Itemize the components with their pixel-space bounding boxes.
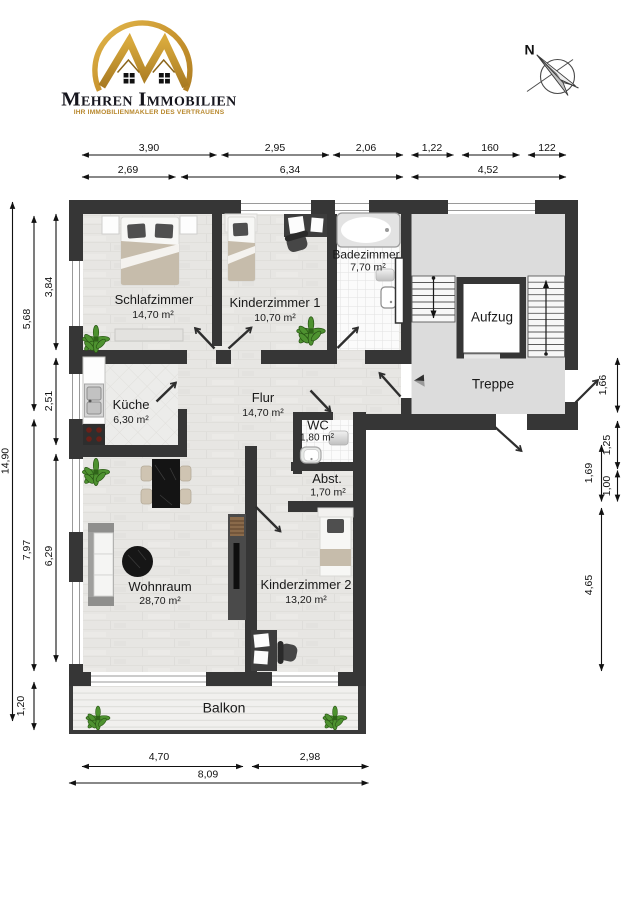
svg-text:14,90: 14,90 [0,448,12,474]
svg-text:1,66: 1,66 [597,375,609,396]
svg-text:Mehren Immobilien: Mehren Immobilien [61,89,236,111]
svg-text:10,70 m²: 10,70 m² [254,312,296,324]
svg-text:3,84: 3,84 [43,277,55,298]
svg-text:28,70 m²: 28,70 m² [139,595,181,607]
svg-text:8,09: 8,09 [198,769,219,781]
svg-text:Abst.: Abst. [312,471,342,486]
svg-text:1,00: 1,00 [601,476,613,497]
svg-text:Wohnraum: Wohnraum [128,579,191,594]
svg-text:4,65: 4,65 [583,575,595,596]
svg-text:1,25: 1,25 [601,435,613,456]
svg-text:Aufzug: Aufzug [471,310,513,325]
svg-text:Balkon: Balkon [203,700,246,716]
svg-text:Flur: Flur [252,390,275,405]
svg-text:14,70 m²: 14,70 m² [132,309,174,321]
svg-text:7,97: 7,97 [21,540,33,561]
svg-text:6,34: 6,34 [280,164,301,176]
svg-text:Kinderzimmer 1: Kinderzimmer 1 [229,295,320,310]
svg-text:1,69: 1,69 [583,463,595,484]
svg-text:Kinderzimmer 2: Kinderzimmer 2 [260,577,351,592]
svg-text:2,98: 2,98 [300,751,321,763]
svg-text:1,22: 1,22 [422,142,443,154]
svg-text:2,51: 2,51 [43,391,55,412]
svg-text:1,80 m²: 1,80 m² [300,433,335,444]
svg-text:2,69: 2,69 [118,164,139,176]
svg-text:WC: WC [307,418,329,433]
svg-text:4,52: 4,52 [478,164,499,176]
svg-text:3,90: 3,90 [139,142,160,154]
svg-text:1,70 m²: 1,70 m² [310,487,346,499]
svg-text:5,68: 5,68 [21,309,33,330]
svg-text:Treppe: Treppe [472,377,514,392]
svg-text:6,30 m²: 6,30 m² [113,414,149,426]
svg-text:14,70 m²: 14,70 m² [242,407,284,419]
svg-text:4,70: 4,70 [149,751,170,763]
svg-text:2,06: 2,06 [356,142,377,154]
svg-text:Küche: Küche [113,397,150,412]
svg-text:160: 160 [481,142,499,154]
svg-text:122: 122 [538,142,556,154]
svg-text:13,20 m²: 13,20 m² [285,594,327,606]
svg-text:7,70 m²: 7,70 m² [350,262,386,274]
svg-text:Badezimmer: Badezimmer [332,248,399,262]
svg-text:2,95: 2,95 [265,142,286,154]
svg-text:N: N [525,42,535,58]
svg-text:6,29: 6,29 [43,546,55,567]
svg-text:1,20: 1,20 [15,696,27,717]
svg-text:Schlafzimmer: Schlafzimmer [115,292,194,307]
svg-text:IHR IMMOBILIENMAKLER DES VERTR: IHR IMMOBILIENMAKLER DES VERTRAUENS [74,109,225,116]
